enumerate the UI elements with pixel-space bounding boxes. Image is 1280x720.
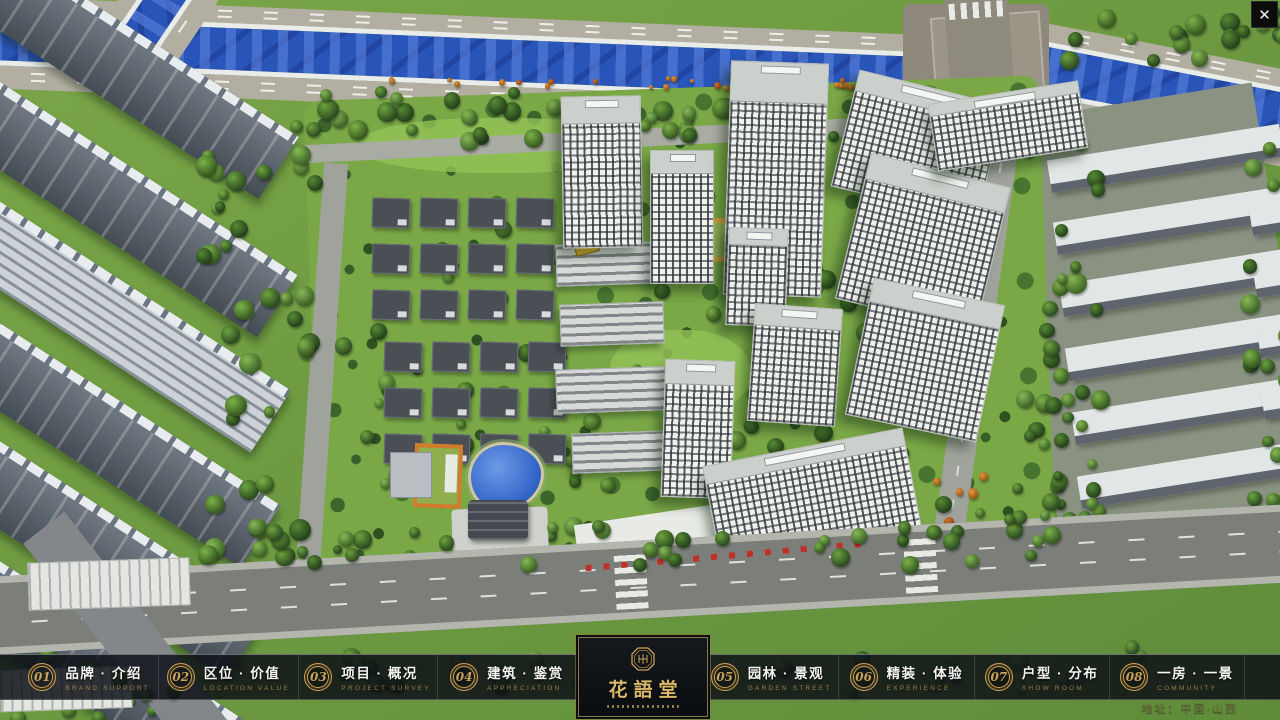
logo-panel[interactable]: 花語堂 — [578, 637, 708, 717]
tree — [1025, 550, 1037, 562]
tree — [297, 338, 315, 356]
tree — [926, 525, 941, 540]
logo-seal-icon — [630, 646, 656, 672]
tree — [295, 286, 314, 305]
project-address: 地址：中国·山西 — [1141, 700, 1238, 716]
tree — [1057, 273, 1067, 283]
tree — [1086, 498, 1097, 509]
nav-item-architecture[interactable]: 04 建筑 · 鉴赏APPRECIATION — [437, 655, 576, 699]
aerial-city-render — [0, 0, 1280, 720]
tree — [439, 535, 455, 551]
tree — [1070, 261, 1081, 272]
tree — [289, 519, 311, 541]
tree — [569, 475, 581, 487]
tree — [456, 419, 466, 429]
item-number-badge: 03 — [304, 663, 332, 691]
tree — [1054, 433, 1069, 448]
autumn-tree — [499, 79, 505, 85]
courtyard-house — [419, 289, 458, 320]
tree — [198, 545, 218, 565]
residential-tower — [747, 303, 843, 427]
tree — [1243, 349, 1261, 367]
tree — [520, 556, 537, 573]
logo-title: 花語堂 — [602, 675, 683, 702]
tree — [1240, 294, 1260, 314]
tree — [275, 548, 293, 566]
tree — [1012, 483, 1023, 494]
tree — [252, 541, 268, 557]
tree — [1038, 438, 1050, 450]
courtyard-house — [515, 197, 554, 228]
nav-label-zh: 园林 · 景观 — [748, 662, 825, 682]
tree — [239, 353, 260, 374]
tree — [196, 155, 217, 176]
nav-group-right: 05 园林 · 景观GARDEN STREET 06 精装 · 体验EXPERI… — [704, 655, 1245, 699]
tree — [287, 311, 303, 327]
tree — [1055, 224, 1068, 237]
nav-label-zh: 区位 · 价值 — [204, 662, 281, 682]
courtyard-house — [515, 243, 554, 274]
autumn-tree — [671, 76, 677, 82]
tree — [256, 165, 272, 181]
tree — [92, 711, 105, 720]
tree — [1053, 368, 1069, 384]
nav-label-zh: 品牌 · 介绍 — [65, 662, 142, 682]
tree — [1185, 14, 1206, 35]
tree — [333, 545, 342, 554]
tree — [1024, 430, 1036, 442]
tree — [1191, 49, 1208, 66]
tree — [215, 201, 226, 212]
tree — [1267, 179, 1280, 192]
tree — [395, 103, 414, 122]
courtyard-house — [467, 243, 506, 274]
nav-item-project-survey[interactable]: 03 项目 · 概况PROJECT SURVEY — [298, 655, 437, 699]
tree — [360, 430, 374, 444]
nav-group-left: 01 品牌 · 介绍BRAND SUPPORT 02 区位 · 价值LOCATI… — [20, 655, 576, 699]
tree — [248, 519, 265, 536]
autumn-tree — [840, 78, 844, 82]
logo-subtext-illegible — [607, 705, 679, 708]
tree — [1086, 482, 1102, 498]
residential-tower — [561, 95, 644, 248]
tree — [1062, 412, 1073, 423]
tree — [1045, 397, 1062, 414]
nav-label-en: BRAND SUPPORT — [65, 685, 149, 692]
tree — [1042, 493, 1060, 511]
nav-item-garden-landscape[interactable]: 05 园林 · 景观GARDEN STREET — [704, 655, 838, 699]
courtyard-house — [431, 387, 470, 418]
tree — [374, 398, 384, 408]
nav-label-en: APPRECIATION — [487, 685, 561, 692]
tree — [1043, 526, 1061, 544]
low-slab-building — [27, 557, 191, 611]
tree — [220, 240, 232, 252]
tree — [633, 558, 647, 572]
tree — [291, 145, 311, 165]
item-number-badge: 01 — [28, 663, 56, 691]
tree — [975, 508, 985, 518]
courtyard-house — [371, 289, 410, 320]
tree — [1075, 385, 1090, 400]
tree — [897, 534, 909, 546]
autumn-tree — [593, 79, 598, 84]
tree — [317, 99, 338, 120]
nav-label-zh: 户型 · 分布 — [1022, 662, 1099, 682]
tree — [643, 542, 659, 558]
item-number-badge: 02 — [167, 663, 195, 691]
tree — [682, 106, 697, 121]
tree — [901, 556, 919, 574]
nav-item-location-value[interactable]: 02 区位 · 价值LOCATION VALUE — [158, 655, 297, 699]
courtyard-house — [371, 243, 410, 274]
presentation-app-window: ✕ 01 品牌 · 介绍BRAND SUPPORT 02 区位 · 价值LOCA… — [0, 0, 1280, 720]
nav-label-zh: 一房 · 一景 — [1157, 662, 1234, 682]
tree — [1244, 159, 1261, 176]
item-number-badge: 04 — [450, 663, 478, 691]
courtyard-house — [371, 197, 410, 228]
item-number-badge: 08 — [1120, 663, 1148, 691]
autumn-tree — [714, 82, 721, 89]
nav-item-interior-experience[interactable]: 06 精装 · 体验EXPERIENCE — [838, 655, 973, 699]
midrise-slab — [571, 430, 670, 473]
autumn-tree — [545, 83, 550, 88]
nav-label-en: PROJECT SURVEY — [341, 685, 430, 692]
nav-label-en: SHOW ROOM — [1022, 685, 1084, 692]
autumn-tree — [933, 478, 940, 485]
tree — [461, 109, 477, 125]
tree — [898, 521, 911, 534]
nav-label-zh: 精装 · 体验 — [887, 662, 964, 682]
nav-label-en: GARDEN STREET — [748, 685, 832, 692]
tree — [600, 478, 615, 493]
nav-item-brand-intro[interactable]: 01 品牌 · 介绍BRAND SUPPORT — [20, 655, 158, 699]
tree — [353, 530, 372, 549]
midrise-slab — [555, 366, 666, 414]
tree — [230, 220, 248, 238]
midrise-slab — [559, 301, 664, 347]
tree — [345, 548, 359, 562]
tree — [473, 127, 487, 141]
tree — [1068, 32, 1083, 47]
tree — [1032, 535, 1044, 547]
tree — [1270, 447, 1280, 462]
tree — [583, 413, 600, 430]
tree — [205, 495, 224, 514]
autumn-tree — [516, 80, 521, 85]
tree — [264, 406, 275, 417]
nav-item-floorplan-distribution[interactable]: 07 户型 · 分布SHOW ROOM — [974, 655, 1109, 699]
tree — [1042, 301, 1057, 316]
courtyard-house — [419, 197, 458, 228]
nav-label-en: LOCATION VALUE — [204, 685, 290, 692]
tree — [1221, 30, 1240, 49]
nav-label-en: COMMUNITY — [1157, 685, 1217, 692]
tree — [965, 554, 979, 568]
tree — [1016, 390, 1033, 407]
tree — [1125, 640, 1139, 654]
tree — [662, 122, 679, 139]
courtyard-house — [383, 341, 422, 372]
tree — [668, 553, 682, 567]
tree — [1060, 51, 1079, 70]
tree — [1090, 303, 1103, 316]
courtyard-house — [515, 289, 554, 320]
item-number-badge: 07 — [985, 663, 1013, 691]
autumn-tree — [454, 81, 460, 87]
tree — [715, 531, 730, 546]
autumn-tree — [979, 472, 988, 481]
tree — [1039, 323, 1055, 339]
tree — [1091, 390, 1111, 410]
tree — [943, 533, 959, 549]
tree — [260, 288, 280, 308]
nav-label-en: EXPERIENCE — [887, 685, 951, 692]
courtyard-house — [419, 243, 458, 274]
tree — [406, 124, 418, 136]
bottom-navbar: 01 品牌 · 介绍BRAND SUPPORT 02 区位 · 价值LOCATI… — [0, 654, 1280, 700]
item-number-badge: 05 — [711, 663, 739, 691]
courtyard-house — [383, 387, 422, 418]
tree — [348, 120, 368, 140]
autumn-tree — [666, 76, 670, 80]
tree — [377, 102, 397, 122]
residential-tower — [845, 278, 1005, 443]
tree — [196, 248, 212, 264]
tree — [831, 548, 850, 567]
nav-item-room-view[interactable]: 08 一房 · 一景COMMUNITY — [1109, 655, 1244, 699]
tree — [320, 89, 332, 101]
courtyard-house — [431, 341, 470, 372]
courtyard-house — [479, 341, 518, 372]
tree — [1097, 9, 1116, 28]
courtyard-house — [467, 197, 506, 228]
courtyard-house — [479, 387, 518, 418]
tree — [335, 337, 352, 354]
clubhouse-building — [390, 452, 432, 498]
residential-tower — [650, 150, 714, 284]
tree — [307, 175, 323, 191]
tree — [488, 96, 507, 115]
tree — [1247, 491, 1262, 506]
tree — [1262, 436, 1273, 447]
nav-label-zh: 项目 · 概况 — [341, 662, 418, 682]
item-number-badge: 06 — [850, 663, 878, 691]
tree — [706, 306, 721, 321]
tree — [1043, 340, 1060, 357]
tree — [280, 292, 293, 305]
entrance-gate-building — [468, 500, 528, 540]
tree — [1263, 142, 1276, 155]
tree — [675, 532, 691, 548]
autumn-tree — [649, 85, 653, 89]
nav-label-zh: 建筑 · 鉴赏 — [487, 662, 564, 682]
courtyard-house — [467, 289, 506, 320]
tree — [1065, 272, 1087, 294]
close-button[interactable]: ✕ — [1251, 1, 1278, 28]
tree — [234, 300, 253, 319]
